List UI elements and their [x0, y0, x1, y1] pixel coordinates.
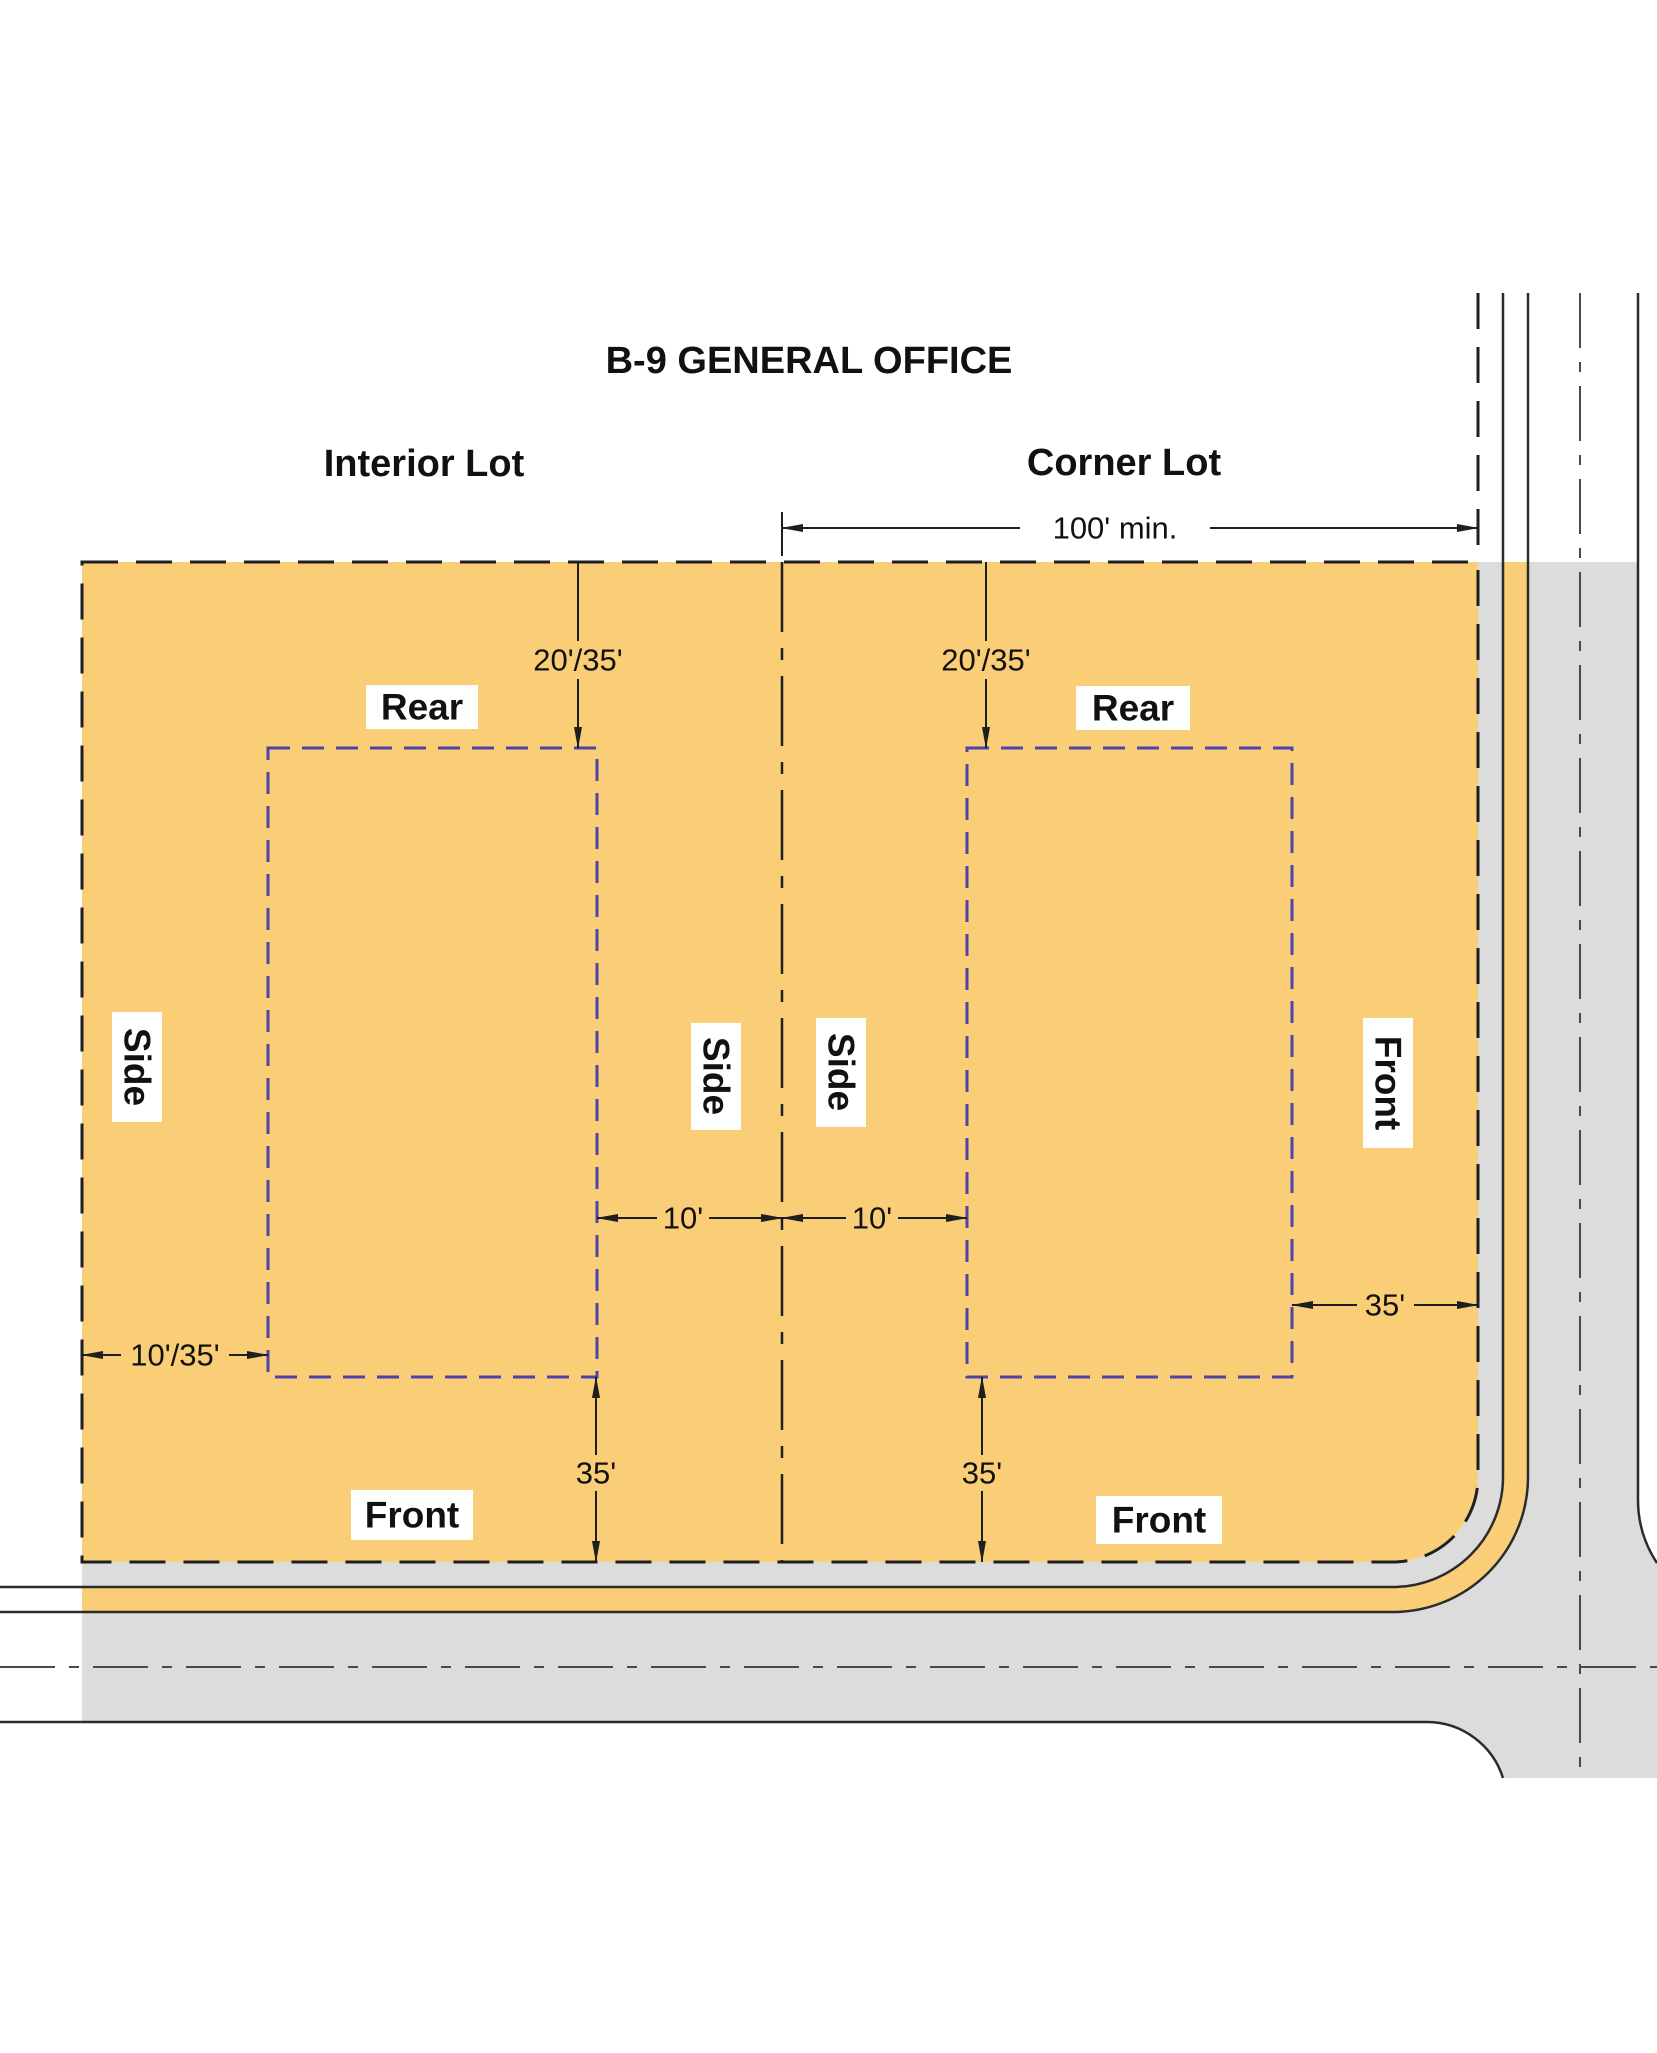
side-label-interior-west: Side [117, 1028, 158, 1106]
front-label-corner: Front [1112, 1500, 1207, 1541]
dim-front-setback-interior: 35' [576, 1456, 616, 1491]
side-label-corner-west: Side [821, 1033, 862, 1111]
corner-lot-heading: Corner Lot [1027, 442, 1222, 484]
far-curb-vertical-line [1638, 293, 1657, 1563]
rear-label-interior: Rear [381, 687, 463, 728]
dim-street-front-setback-corner: 35' [1365, 1288, 1405, 1323]
dim-lot-width: 100' min. [1053, 511, 1178, 546]
lot-parcel-area [82, 562, 1478, 1562]
rear-label-corner: Rear [1092, 688, 1174, 729]
zoning-diagram: 100' min. 20'/35' 20'/35' 10' 10' 35' 10… [0, 0, 1657, 2053]
dim-side-setback-interior: 10' [663, 1201, 703, 1236]
dim-street-side-setback-interior: 10'/35' [130, 1338, 219, 1373]
zoning-diagram-page: 100' min. 20'/35' 20'/35' 10' 10' 35' 10… [0, 0, 1657, 2053]
page-title: B-9 GENERAL OFFICE [606, 340, 1013, 382]
front-label-interior: Front [365, 1495, 460, 1536]
dim-side-setback-corner: 10' [852, 1201, 892, 1236]
interior-lot-heading: Interior Lot [324, 443, 525, 485]
dim-rear-setback-interior: 20'/35' [533, 643, 622, 678]
dim-rear-setback-corner: 20'/35' [941, 643, 1030, 678]
front-label-corner-street-side: Front [1368, 1036, 1409, 1131]
side-label-interior-east: Side [696, 1037, 737, 1115]
dim-front-setback-corner: 35' [962, 1456, 1002, 1491]
far-curb-horizontal-line [0, 1722, 1503, 1778]
